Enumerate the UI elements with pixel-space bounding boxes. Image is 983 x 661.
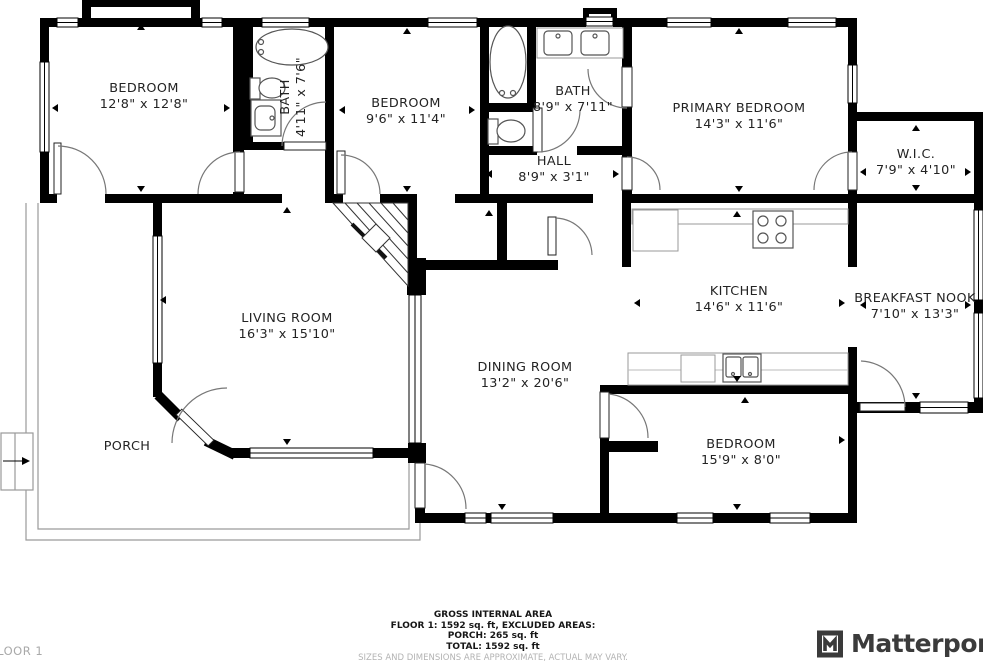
room-label-bedroom-3: BEDROOM 15'9" x 8'0" <box>701 437 781 469</box>
room-name: PORCH <box>104 439 151 455</box>
toilet-2 <box>488 119 525 144</box>
fridge <box>633 210 678 251</box>
area-summary: GROSS INTERNAL AREA FLOOR 1: 1592 sq. ft… <box>358 610 628 661</box>
matterport-logo: Matterport <box>816 629 983 658</box>
room-label-primary-bedroom: PRIMARY BEDROOM 14'3" x 11'6" <box>673 101 806 133</box>
room-label-bath-1: BATH 4'11" x 7'6" <box>278 57 310 137</box>
room-name: BATH <box>278 57 294 137</box>
room-dims: 13'2" x 20'6" <box>477 376 572 392</box>
room-name: DINING ROOM <box>477 360 572 376</box>
room-dims: 8'9" x 7'11" <box>533 100 613 116</box>
room-dims: 14'3" x 11'6" <box>673 117 806 133</box>
room-label-kitchen: KITCHEN 14'6" x 11'6" <box>695 284 784 316</box>
room-dims: 4'11" x 7'6" <box>294 57 310 137</box>
room-name: HALL <box>518 154 589 170</box>
matterport-logo-icon <box>816 630 844 658</box>
room-name: BEDROOM <box>100 81 189 97</box>
room-label-dining-room: DINING ROOM 13'2" x 20'6" <box>477 360 572 392</box>
room-dims: 8'9" x 3'1" <box>518 170 589 186</box>
porch-outline <box>1 203 420 540</box>
room-name: BEDROOM <box>701 437 781 453</box>
room-dims: 14'6" x 11'6" <box>695 300 784 316</box>
total-area-line: TOTAL: 1592 sq. ft <box>358 642 628 653</box>
room-dims: 12'8" x 12'8" <box>100 97 189 113</box>
sink-1 <box>251 100 281 136</box>
room-name: LIVING ROOM <box>238 311 335 327</box>
floor-area-line: FLOOR 1: 1592 sq. ft, EXCLUDED AREAS: <box>358 621 628 632</box>
kitchen-counter-top <box>632 209 848 251</box>
vanity-double <box>537 28 623 58</box>
room-dims: 7'9" x 4'10" <box>876 163 956 179</box>
floorplan-page: BEDROOM 12'8" x 12'8" BATH 4'11" x 7'6" … <box>0 0 983 661</box>
room-dims: 9'6" x 11'4" <box>366 112 446 128</box>
room-label-living-room: LIVING ROOM 16'3" x 15'10" <box>238 311 335 343</box>
cabinet <box>681 355 715 382</box>
room-name: BREAKFAST NOOK <box>854 291 976 307</box>
room-label-breakfast-nook: BREAKFAST NOOK 7'10" x 13'3" <box>854 291 976 323</box>
room-name: BATH <box>533 84 613 100</box>
porch-area-line: PORCH: 265 sq. ft <box>358 631 628 642</box>
room-label-bath-2: BATH 8'9" x 7'11" <box>533 84 613 116</box>
room-name: W.I.C. <box>876 147 956 163</box>
room-label-hall: HALL 8'9" x 3'1" <box>518 154 589 186</box>
room-dims: 7'10" x 13'3" <box>854 307 976 323</box>
room-label-bedroom-1: BEDROOM 12'8" x 12'8" <box>100 81 189 113</box>
disclaimer-text: SIZES AND DIMENSIONS ARE APPROXIMATE, AC… <box>358 653 628 661</box>
stairs <box>333 203 408 286</box>
room-name: KITCHEN <box>695 284 784 300</box>
room-dims: 16'3" x 15'10" <box>238 327 335 343</box>
gross-area-title: GROSS INTERNAL AREA <box>358 610 628 621</box>
stove <box>753 211 793 248</box>
floor-label: FLOOR 1 <box>0 644 43 658</box>
bathtub-2 <box>490 26 526 98</box>
matterport-logo-text: Matterport <box>851 629 983 658</box>
room-name: PRIMARY BEDROOM <box>673 101 806 117</box>
room-name: BEDROOM <box>366 96 446 112</box>
room-label-bedroom-2: BEDROOM 9'6" x 11'4" <box>366 96 446 128</box>
room-label-wic: W.I.C. 7'9" x 4'10" <box>876 147 956 179</box>
room-dims: 15'9" x 8'0" <box>701 453 781 469</box>
room-label-porch: PORCH <box>104 439 151 455</box>
